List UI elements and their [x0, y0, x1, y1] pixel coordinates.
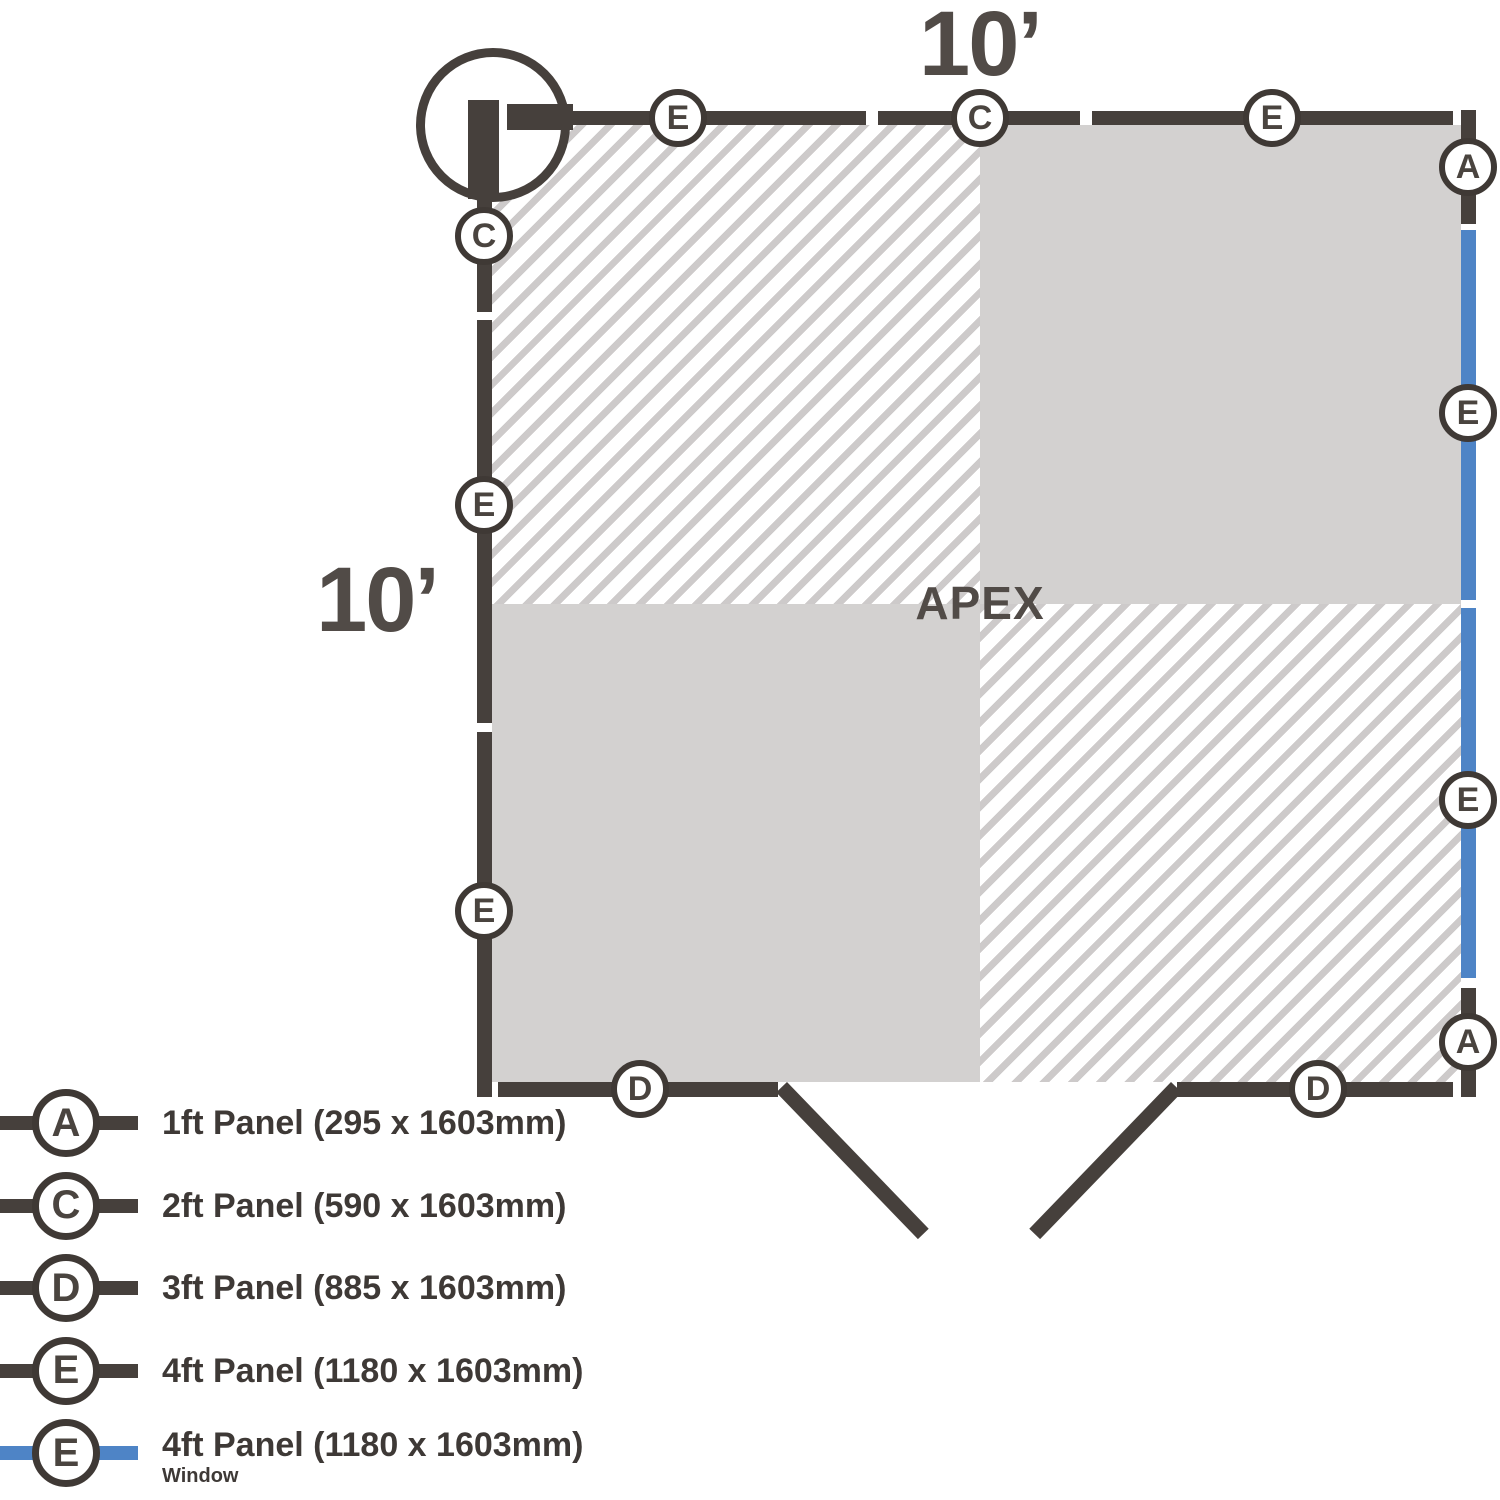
panel-marker-top-c: C	[951, 89, 1009, 147]
legend-row-e: E4ft Panel (1180 x 1603mm)	[0, 1330, 700, 1412]
door-leaf-right	[1029, 1082, 1182, 1239]
wall-top-panel-e	[566, 111, 866, 125]
legend-marker-e: E	[32, 1419, 100, 1487]
panel-marker-right-a: A	[1439, 1013, 1497, 1071]
legend-label: 1ft Panel (295 x 1603mm)	[162, 1104, 566, 1142]
floor-quadrant-bottom-left	[492, 604, 980, 1082]
legend-text: 2ft Panel (590 x 1603mm)	[162, 1187, 566, 1225]
panel-marker-right-e: E	[1439, 771, 1497, 829]
legend-row-a: A1ft Panel (295 x 1603mm)	[0, 1082, 700, 1164]
panel-marker-top-e: E	[1243, 89, 1301, 147]
shed-panel-layout-diagram: ECEAEEACEEDD 10’ 10’ APEX A1ft Panel (29…	[0, 0, 1500, 1500]
legend-text: 1ft Panel (295 x 1603mm)	[162, 1104, 566, 1142]
legend-text: 4ft Panel (1180 x 1603mm)Window	[162, 1426, 583, 1488]
left-dimension-label: 10’	[270, 548, 438, 653]
floor-quadrant-bottom-right-hatched	[980, 604, 1461, 1082]
panel-marker-bottom-d: D	[1289, 1060, 1347, 1118]
legend-label: 4ft Panel (1180 x 1603mm)	[162, 1426, 583, 1464]
legend-sublabel: Window	[162, 1464, 583, 1488]
top-dimension-label: 10’	[900, 0, 1060, 97]
legend-text: 4ft Panel (1180 x 1603mm)	[162, 1352, 583, 1390]
floor-quadrant-top-left-hatched	[492, 125, 980, 604]
legend-label: 3ft Panel (885 x 1603mm)	[162, 1269, 566, 1307]
legend-marker-c: C	[32, 1172, 100, 1240]
legend-row-d: D3ft Panel (885 x 1603mm)	[0, 1247, 700, 1329]
panel-marker-top-e: E	[649, 89, 707, 147]
panel-marker-left-e: E	[455, 476, 513, 534]
legend-row-c: C2ft Panel (590 x 1603mm)	[0, 1165, 700, 1247]
legend-text: 3ft Panel (885 x 1603mm)	[162, 1269, 566, 1307]
panel-marker-left-e: E	[455, 882, 513, 940]
legend-marker-d: D	[32, 1254, 100, 1322]
floor-quadrant-top-right	[980, 125, 1461, 604]
legend-label: 2ft Panel (590 x 1603mm)	[162, 1187, 566, 1225]
panel-marker-right-e: E	[1439, 384, 1497, 442]
legend-row-e-window: E4ft Panel (1180 x 1603mm)Window	[0, 1412, 700, 1494]
panel-marker-left-c: C	[455, 207, 513, 265]
legend-label: 4ft Panel (1180 x 1603mm)	[162, 1352, 583, 1390]
apex-label: APEX	[915, 576, 1044, 630]
corner-detail-left-wall-end	[468, 100, 499, 199]
corner-detail-top-wall-end	[507, 104, 573, 130]
panel-marker-right-a: A	[1439, 138, 1497, 196]
legend-marker-e: E	[32, 1337, 100, 1405]
door-leaf-left	[776, 1082, 929, 1239]
legend-marker-a: A	[32, 1089, 100, 1157]
